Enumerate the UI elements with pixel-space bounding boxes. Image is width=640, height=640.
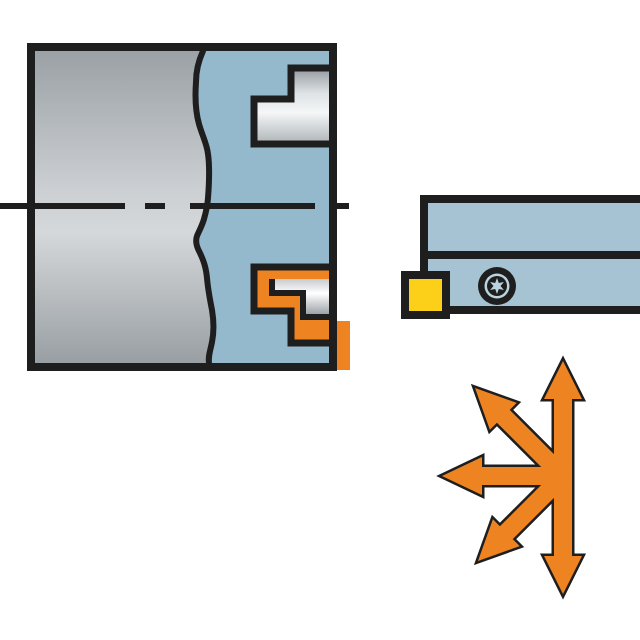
holder-shank [428, 203, 640, 251]
holder-clamp-section [428, 259, 640, 306]
feed-direction-arrows [442, 361, 582, 594]
workpiece-section [0, 47, 350, 370]
arrow-fills [442, 361, 582, 594]
toolholder [401, 195, 640, 319]
machining-diagram [0, 0, 640, 640]
cutting-insert [409, 279, 442, 311]
illustration-canvas [0, 0, 640, 640]
cutting-point-tab [337, 321, 350, 370]
torx-screw-icon [478, 267, 516, 305]
